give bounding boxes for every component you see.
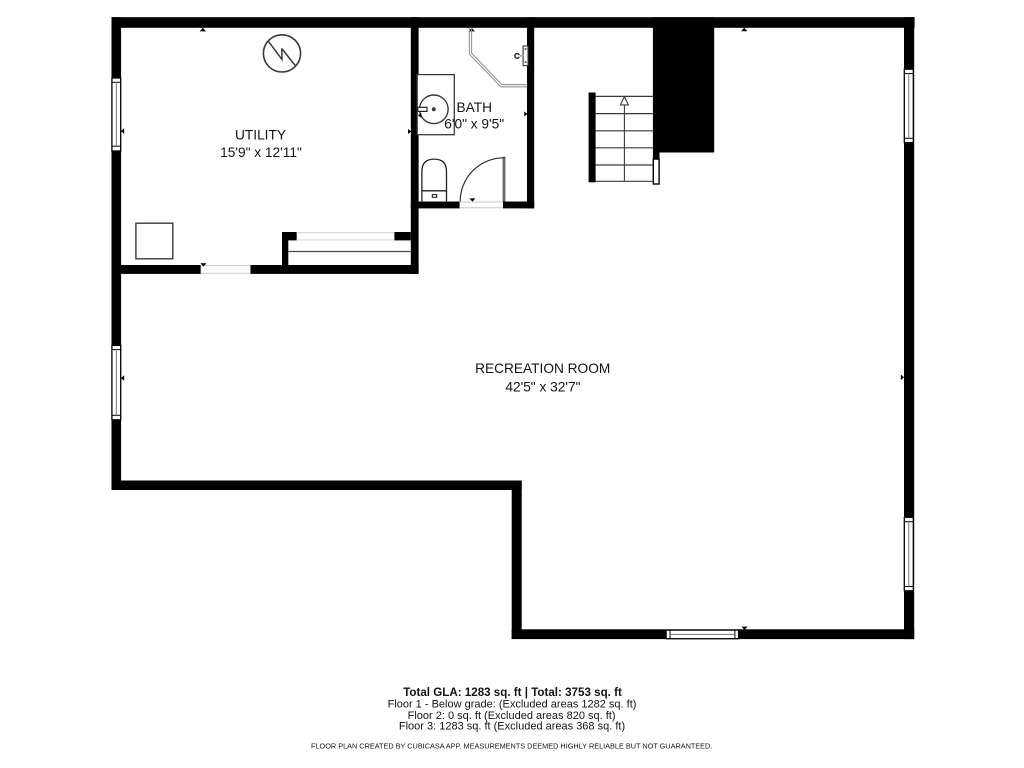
svg-text:42'5" x 32'7": 42'5" x 32'7" — [505, 379, 580, 394]
svg-text:Floor 3: 1283 sq. ft (Excluded: Floor 3: 1283 sq. ft (Excluded areas 368… — [399, 720, 625, 732]
svg-text:6'0" x 9'5": 6'0" x 9'5" — [444, 117, 504, 132]
svg-text:15'9" x 12'11": 15'9" x 12'11" — [220, 145, 302, 160]
svg-text:FLOOR PLAN CREATED BY CUBICASA: FLOOR PLAN CREATED BY CUBICASA APP. MEAS… — [311, 742, 712, 751]
svg-text:RECREATION ROOM: RECREATION ROOM — [475, 361, 610, 376]
svg-text:Total GLA: 1283 sq. ft | Total: Total GLA: 1283 sq. ft | Total: 3753 sq.… — [403, 686, 622, 699]
svg-text:Floor 1 - Below grade: (Exclud: Floor 1 - Below grade: (Excluded areas 1… — [388, 699, 637, 711]
svg-text:BATH: BATH — [457, 100, 493, 115]
svg-text:UTILITY: UTILITY — [235, 128, 286, 143]
